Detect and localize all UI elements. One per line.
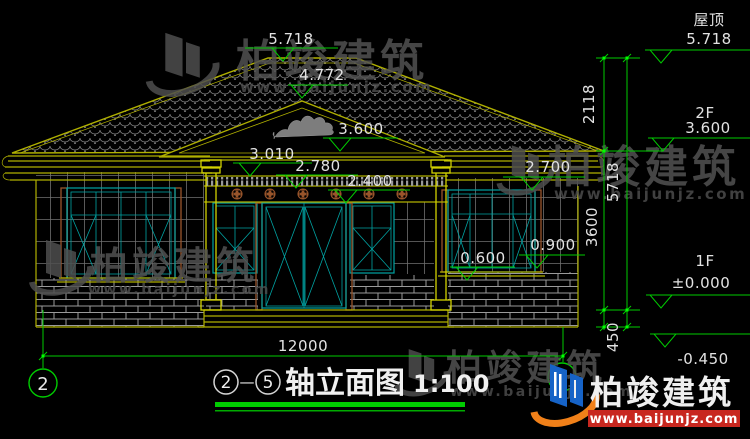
dim-value: 12000 [278, 337, 328, 355]
elev-value: 2.700 [525, 158, 570, 176]
dim-plinth: 450 [604, 322, 622, 352]
floor2-elev: 3.600 [685, 119, 730, 137]
porch-right-brick [350, 275, 434, 310]
elev-value: 2.780 [295, 157, 340, 175]
axis-bubble-left-label: 2 [37, 374, 48, 395]
title-underline-thick [215, 402, 465, 407]
porch-right-wall-tiles [394, 202, 434, 274]
dentil-band [206, 177, 446, 186]
elev-value: 4.772 [299, 66, 344, 84]
elev-value: 3.010 [249, 145, 294, 163]
brand-url: www.baijunjz.com [590, 412, 739, 427]
roof-label: 屋顶 [693, 11, 724, 29]
watermark-color-logo: 柏竣建筑 www.baijunjz.com [534, 364, 740, 427]
title-scale: 1:100 [413, 370, 489, 398]
porch-steps [198, 310, 454, 327]
title-underline-thin [215, 410, 465, 412]
level-marker-1f: 1F ±0.000 [646, 252, 750, 308]
title-block: 2 — 5 轴立面图 1:100 [214, 366, 489, 412]
elev-value: 2.400 [347, 172, 392, 190]
floor1-elev: ±0.000 [672, 274, 731, 292]
elevation-drawing: 2 柏竣建筑 www.baijunjz.com 柏竣建筑 www.baijunj… [0, 0, 750, 439]
elev-value: 0.900 [530, 236, 575, 254]
elev-value: 3.600 [338, 120, 383, 138]
title-name: 轴立面图 [285, 366, 405, 401]
dim-roof-to-2f: 2118 [580, 84, 598, 124]
title-axis-start: 2 [221, 373, 232, 393]
level-marker-roof: 屋顶 5.718 [645, 11, 750, 63]
level-marker-ground: -0.450 [650, 334, 750, 368]
right-dim-column: 2118 5718 3600 450 [580, 54, 663, 352]
title-dash: — [240, 373, 255, 391]
dim-total-height: 5718 [604, 162, 622, 202]
right-brick-base [448, 272, 578, 327]
elev-value: 0.600 [460, 249, 505, 267]
watermark-url: www.baijunjz.com [88, 282, 271, 298]
dim-2f-to-1f: 3600 [583, 207, 601, 247]
floor1-label: 1F [695, 252, 714, 270]
brand-name: 柏竣建筑 [590, 373, 734, 412]
right-sidelight-window [350, 203, 394, 273]
title-axis-end: 5 [263, 373, 274, 393]
ground-elev: -0.450 [677, 350, 728, 368]
cad-elevation-canvas: 2 柏竣建筑 www.baijunjz.com 柏竣建筑 www.baijunj… [0, 0, 750, 439]
watermark-url: www.baijunjz.com [554, 185, 747, 203]
elev-value: 5.718 [268, 30, 313, 48]
roof-elev: 5.718 [686, 30, 731, 48]
